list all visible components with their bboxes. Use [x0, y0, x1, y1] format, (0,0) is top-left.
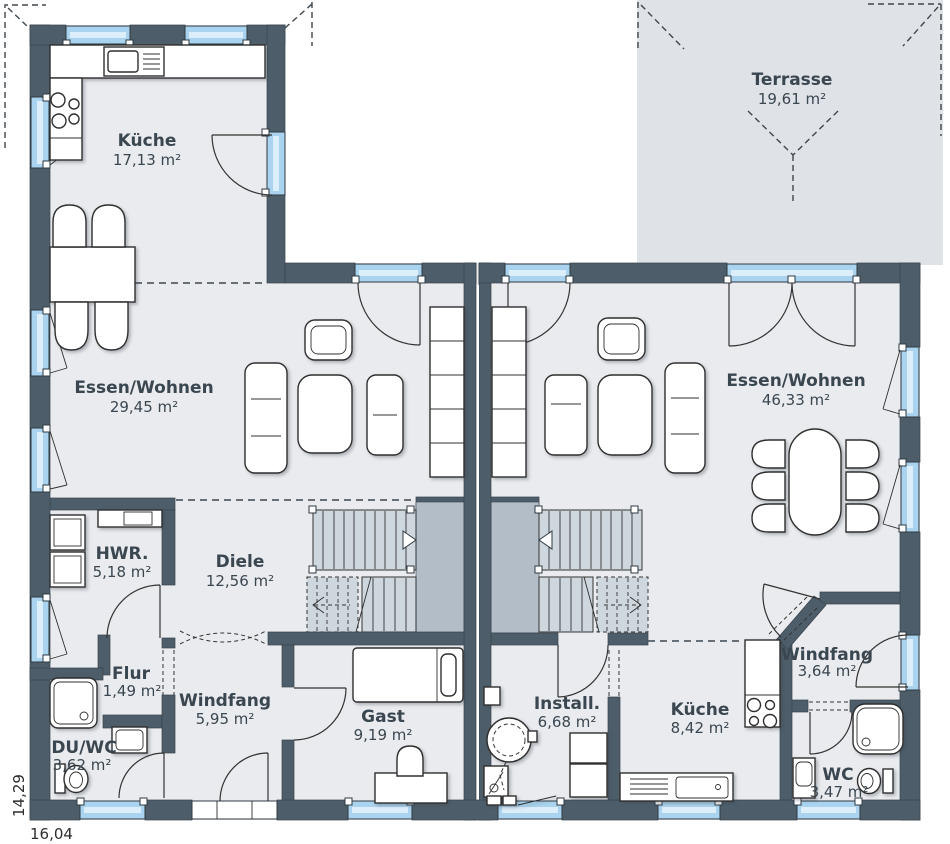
room-label-flur-name: Flur: [112, 664, 151, 684]
room-label-windfang-left-name: Windfang: [179, 691, 271, 711]
room-label-gast-name: Gast: [361, 707, 405, 727]
window-bottom-wc: [794, 798, 862, 819]
room-label-essen-right-area: 46,33 m²: [762, 391, 830, 409]
room-label-install-area: 6,68 m²: [538, 713, 597, 731]
room-label-diele-name: Diele: [216, 552, 265, 572]
room-label-hwr-area: 5,18 m²: [93, 563, 152, 581]
room-label-wc-name: WC: [822, 765, 853, 785]
room-label-hwr-name: HWR.: [96, 544, 149, 564]
room-label-kueche-right-name: Küche: [671, 700, 730, 720]
terrace-double-door: [724, 264, 860, 283]
room-label-terrasse-name: Terrasse: [752, 70, 833, 90]
dimension-bottom: 16,04: [30, 825, 73, 843]
room-label-flur-area: 1,49 m²: [103, 682, 162, 700]
room-label-install-name: Install.: [534, 694, 600, 714]
entrance-door-left-unit: [192, 801, 277, 819]
terrace-area: [637, 0, 943, 265]
floor-plan: Küche 17,13 m² Terrasse 19,61 m² Essen/W…: [0, 0, 950, 844]
window-bottom-duwc: [77, 798, 147, 819]
room-label-windfang-right-area: 3,64 m²: [798, 662, 857, 680]
entrance-door-right-unit: [899, 632, 919, 691]
room-label-wc-area: 3,47 m²: [810, 783, 869, 801]
room-label-windfang-left-area: 5,95 m²: [196, 710, 255, 728]
room-label-duwc-area: 3,62 m²: [53, 756, 112, 774]
room-label-essen-left-name: Essen/Wohnen: [74, 378, 213, 398]
room-label-gast-area: 9,19 m²: [354, 726, 413, 744]
terrace-door-right-unit: [502, 264, 573, 283]
dimension-left: 14,29: [10, 774, 28, 817]
room-label-terrasse-area: 19,61 m²: [758, 90, 826, 108]
room-label-kueche-right-area: 8,42 m²: [671, 719, 730, 737]
room-label-duwc-name: DU/WC: [51, 738, 116, 758]
room-label-essen-right-name: Essen/Wohnen: [726, 371, 865, 391]
room-label-essen-left-area: 29,45 m²: [110, 398, 178, 416]
room-label-kueche-left-area: 17,13 m²: [113, 151, 181, 169]
room-label-kueche-left-name: Küche: [118, 131, 177, 151]
terrace-door-left-unit: [352, 264, 425, 283]
room-label-diele-area: 12,56 m²: [206, 572, 274, 590]
